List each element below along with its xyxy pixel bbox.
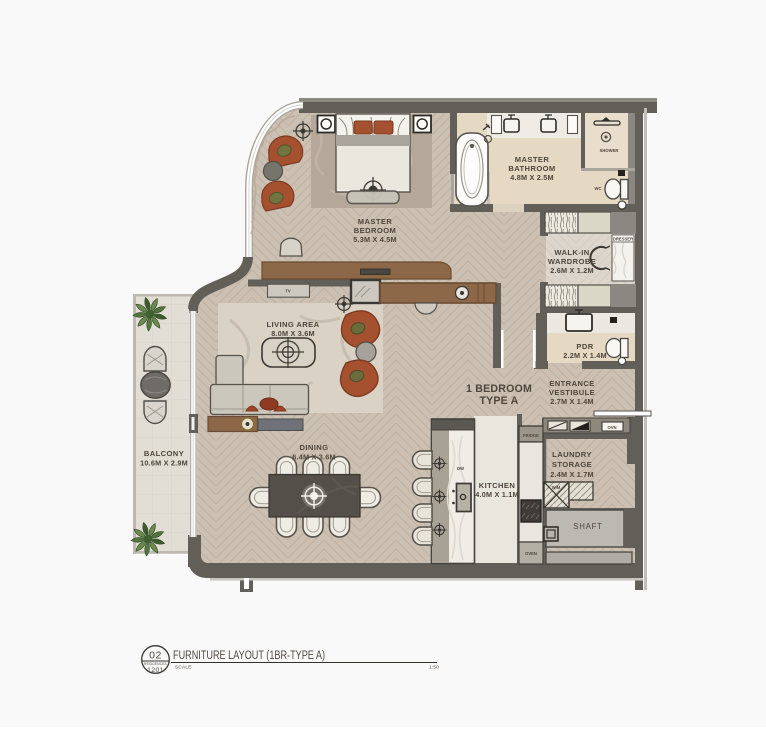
svg-text:2.7M X 1.4M: 2.7M X 1.4M bbox=[550, 397, 594, 406]
svg-text:STORAGE: STORAGE bbox=[552, 460, 592, 469]
svg-text:W/M: W/M bbox=[552, 485, 561, 490]
svg-text:8.0M X 3.6M: 8.0M X 3.6M bbox=[271, 329, 315, 338]
svg-text:1201: 1201 bbox=[147, 667, 164, 674]
svg-text:MASTER: MASTER bbox=[358, 217, 393, 226]
svg-text:2.6M X 1.2M: 2.6M X 1.2M bbox=[550, 266, 594, 275]
svg-text:2.4M X 1.7M: 2.4M X 1.7M bbox=[550, 470, 594, 479]
svg-text:TV: TV bbox=[285, 289, 291, 294]
svg-text:BEDROOM: BEDROOM bbox=[354, 226, 396, 235]
svg-text:DW: DW bbox=[457, 466, 464, 471]
svg-text:4.0M X 1.1M: 4.0M X 1.1M bbox=[475, 490, 519, 499]
svg-text:Tv: Tv bbox=[371, 270, 375, 274]
svg-text:OVN: OVN bbox=[607, 425, 616, 430]
svg-text:BATHROOM: BATHROOM bbox=[508, 164, 555, 173]
svg-text:SCALE: SCALE bbox=[175, 665, 192, 670]
svg-text:FURNITURE LAYOUT (1BR-TYPE A): FURNITURE LAYOUT (1BR-TYPE A) bbox=[173, 650, 325, 662]
svg-text:KITCHEN: KITCHEN bbox=[479, 481, 516, 490]
svg-text:TYPE A: TYPE A bbox=[479, 395, 518, 407]
svg-text:VESTIBULE: VESTIBULE bbox=[549, 388, 595, 397]
svg-text:DRESSER: DRESSER bbox=[613, 237, 633, 242]
svg-text:WALK-IN: WALK-IN bbox=[554, 248, 589, 257]
svg-text:5.3M X 4.5M: 5.3M X 4.5M bbox=[353, 235, 397, 244]
svg-text:ENTRANCE: ENTRANCE bbox=[549, 379, 594, 388]
svg-text:DINING: DINING bbox=[300, 443, 329, 452]
svg-text:BALCONY: BALCONY bbox=[144, 449, 184, 458]
svg-text:SHAFT: SHAFT bbox=[573, 522, 603, 531]
svg-text:WC: WC bbox=[595, 186, 602, 191]
svg-text:2.2M X 1.4M: 2.2M X 1.4M bbox=[563, 351, 607, 360]
svg-text:OVEN: OVEN bbox=[525, 551, 537, 556]
svg-text:MASTER: MASTER bbox=[515, 155, 550, 164]
svg-text:LAUNDRY: LAUNDRY bbox=[552, 450, 592, 459]
svg-text:WARDROBE: WARDROBE bbox=[548, 257, 596, 266]
svg-text:RESIDENCES: RESIDENCES bbox=[144, 662, 167, 666]
svg-text:1:50: 1:50 bbox=[429, 665, 439, 670]
svg-text:02: 02 bbox=[149, 650, 162, 662]
svg-text:SHOWER: SHOWER bbox=[600, 148, 619, 153]
svg-text:PDR: PDR bbox=[576, 342, 593, 351]
svg-text:LIVING AREA: LIVING AREA bbox=[266, 320, 319, 329]
svg-text:FRIDGE: FRIDGE bbox=[523, 433, 539, 438]
svg-text:4.8M X 2.5M: 4.8M X 2.5M bbox=[510, 173, 554, 182]
svg-text:6.4M X 3.6M: 6.4M X 3.6M bbox=[292, 453, 336, 462]
svg-text:10.6M X 2.9M: 10.6M X 2.9M bbox=[140, 459, 188, 468]
svg-text:1 BEDROOM: 1 BEDROOM bbox=[466, 383, 532, 395]
